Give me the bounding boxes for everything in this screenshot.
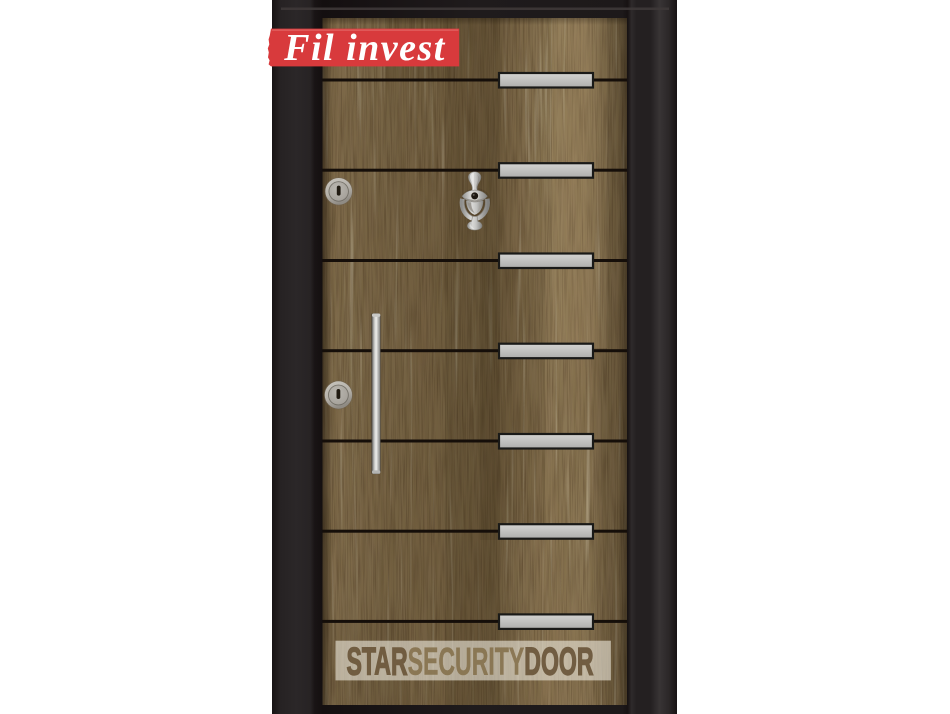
- svg-text:Fil invest: Fil invest: [283, 27, 446, 69]
- svg-text:STARSECURITYDOOR: STARSECURITYDOOR: [347, 639, 594, 683]
